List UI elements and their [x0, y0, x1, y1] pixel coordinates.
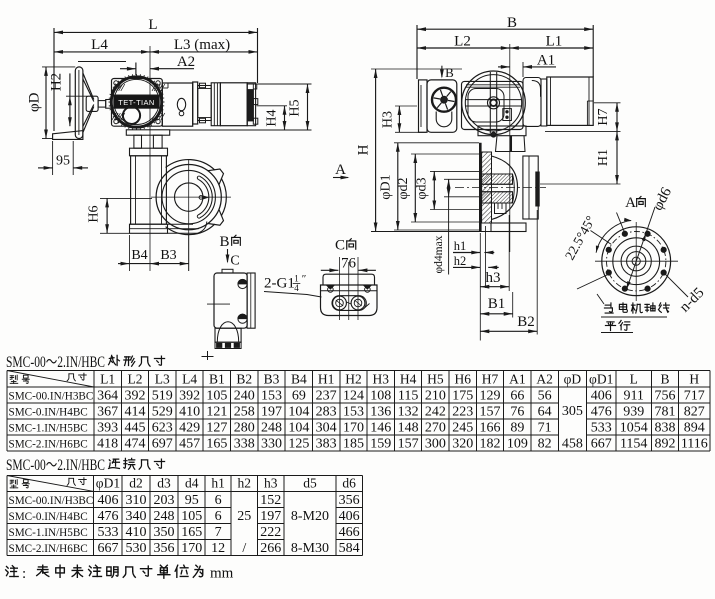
svg-text:392: 392: [179, 389, 200, 404]
svg-text:132: 132: [398, 405, 419, 420]
svg-text:146: 146: [370, 421, 391, 436]
svg-text:L1: L1: [100, 371, 115, 386]
svg-text:248: 248: [154, 509, 175, 524]
svg-text:838: 838: [655, 421, 676, 436]
svg-text:476: 476: [591, 405, 612, 420]
svg-text:445: 445: [124, 421, 145, 436]
svg-text:356: 356: [154, 541, 175, 556]
svg-text:121: 121: [206, 405, 227, 420]
svg-text:H7: H7: [596, 108, 611, 125]
svg-text:SMC-2.IN/H6BC: SMC-2.IN/H6BC: [9, 543, 88, 555]
svg-text:A2: A2: [177, 54, 195, 70]
svg-text:H1: H1: [318, 371, 335, 386]
svg-text:8-M30: 8-M30: [291, 541, 329, 556]
svg-text:124: 124: [343, 389, 364, 404]
svg-text:105: 105: [181, 509, 202, 524]
svg-text:519: 519: [152, 389, 173, 404]
svg-text:B4: B4: [131, 248, 147, 263]
svg-text:L3 (max): L3 (max): [174, 37, 230, 53]
svg-text:69: 69: [292, 389, 306, 404]
svg-text:781: 781: [655, 405, 676, 420]
svg-text:457: 457: [179, 437, 200, 452]
svg-text:L3: L3: [155, 371, 170, 386]
svg-text:356: 356: [339, 493, 360, 508]
svg-text:L: L: [630, 371, 638, 386]
svg-text:1054: 1054: [620, 421, 648, 436]
svg-text:304: 304: [316, 421, 337, 436]
svg-text:410: 410: [126, 525, 147, 540]
svg-text:533: 533: [591, 421, 612, 436]
svg-text:717: 717: [684, 389, 705, 404]
svg-text:/: /: [242, 541, 246, 556]
svg-text:466: 466: [339, 525, 360, 540]
svg-text:170: 170: [181, 541, 202, 556]
svg-text:H2: H2: [49, 73, 65, 91]
svg-text:25: 25: [237, 509, 251, 524]
svg-text:SMC-00.IN/H3BC: SMC-00.IN/H3BC: [9, 391, 94, 403]
svg-text:φD: φD: [564, 371, 582, 386]
svg-text:71: 71: [538, 421, 552, 436]
svg-text:6: 6: [215, 493, 222, 508]
svg-text:1116: 1116: [681, 437, 708, 452]
svg-text:φD1: φD1: [96, 476, 120, 491]
svg-text:h3: h3: [264, 476, 278, 491]
svg-text:H2: H2: [345, 371, 362, 386]
svg-text:340: 340: [126, 509, 147, 524]
svg-text:d2: d2: [129, 476, 143, 491]
svg-text:166: 166: [480, 421, 501, 436]
svg-text:B1: B1: [209, 371, 225, 386]
svg-text:383: 383: [316, 437, 337, 452]
svg-text:148: 148: [398, 421, 419, 436]
svg-text:mm: mm: [210, 566, 234, 582]
svg-text:SMC-1.IN/H5BC: SMC-1.IN/H5BC: [9, 423, 88, 435]
svg-text:95: 95: [185, 493, 199, 508]
svg-text:237: 237: [316, 389, 337, 404]
svg-text:280: 280: [234, 421, 255, 436]
svg-text:H7: H7: [482, 371, 499, 386]
svg-text:H5: H5: [288, 99, 303, 116]
svg-text:210: 210: [425, 389, 446, 404]
svg-text:L1: L1: [546, 34, 563, 50]
svg-text:H1: H1: [596, 149, 611, 166]
svg-text:d3: d3: [157, 476, 171, 491]
svg-text:367: 367: [97, 405, 118, 420]
svg-text:B2: B2: [236, 371, 252, 386]
svg-text:258: 258: [234, 405, 255, 420]
svg-text:h2: h2: [454, 254, 467, 268]
svg-text:222: 222: [260, 525, 281, 540]
svg-text:170: 170: [343, 421, 364, 436]
svg-text:B: B: [507, 15, 517, 31]
svg-text:″: ″: [302, 273, 307, 285]
svg-text:C: C: [230, 254, 239, 269]
svg-text:H4: H4: [400, 371, 417, 386]
svg-text:1: 1: [294, 274, 299, 284]
svg-text:φd3: φd3: [415, 177, 430, 199]
svg-text:L: L: [148, 17, 157, 33]
svg-text:TET-TIAN: TET-TIAN: [118, 98, 155, 107]
svg-text:320: 320: [452, 437, 473, 452]
svg-text:533: 533: [97, 525, 118, 540]
svg-text:429: 429: [179, 421, 200, 436]
svg-text:SMC-00～2.IN/HBC: SMC-00～2.IN/HBC: [6, 457, 105, 474]
svg-text:104: 104: [288, 405, 309, 420]
svg-text:H4: H4: [264, 109, 279, 126]
svg-text:175: 175: [452, 389, 473, 404]
svg-text:529: 529: [152, 405, 173, 420]
svg-text:474: 474: [124, 437, 145, 452]
svg-text:623: 623: [152, 421, 173, 436]
svg-text:406: 406: [339, 509, 360, 524]
svg-text:350: 350: [154, 525, 175, 540]
svg-text:283: 283: [316, 405, 337, 420]
svg-text:410: 410: [179, 405, 200, 420]
svg-text:105: 105: [206, 389, 227, 404]
svg-text:109: 109: [507, 437, 528, 452]
svg-text:φD: φD: [27, 92, 43, 112]
svg-text:152: 152: [260, 493, 281, 508]
svg-text:939: 939: [623, 405, 644, 420]
svg-text:d5: d5: [303, 476, 317, 491]
svg-text:129: 129: [480, 389, 501, 404]
svg-text:667: 667: [591, 437, 612, 452]
svg-text:165: 165: [206, 437, 227, 452]
svg-text:h1: h1: [211, 476, 225, 491]
svg-text:584: 584: [339, 541, 360, 556]
svg-text:242: 242: [425, 405, 446, 420]
svg-text:127: 127: [206, 421, 227, 436]
svg-text:157: 157: [480, 405, 501, 420]
svg-text::: :: [22, 566, 26, 582]
svg-text:B3: B3: [264, 371, 280, 386]
svg-text:414: 414: [124, 405, 145, 420]
svg-text:56: 56: [538, 389, 552, 404]
svg-text:393: 393: [97, 421, 118, 436]
svg-text:φd2: φd2: [396, 177, 411, 199]
svg-text:418: 418: [97, 437, 118, 452]
svg-text:L4: L4: [182, 371, 197, 386]
svg-text:203: 203: [154, 493, 175, 508]
svg-text:h3: h3: [486, 270, 501, 286]
svg-text:894: 894: [684, 421, 705, 436]
svg-text:305: 305: [562, 404, 583, 419]
svg-text:476: 476: [97, 509, 118, 524]
svg-text:104: 104: [288, 421, 309, 436]
svg-text:266: 266: [260, 541, 281, 556]
svg-text:95: 95: [56, 154, 70, 169]
svg-text:4: 4: [294, 283, 299, 293]
svg-text:L4: L4: [91, 37, 108, 53]
svg-text:L2: L2: [454, 34, 471, 50]
svg-text:A2: A2: [536, 371, 553, 386]
svg-text:197: 197: [261, 405, 282, 420]
svg-text:7: 7: [215, 525, 222, 540]
svg-text:B1: B1: [488, 296, 506, 312]
svg-text:L2: L2: [127, 371, 142, 386]
svg-text:φD1: φD1: [378, 174, 393, 199]
svg-text:153: 153: [343, 405, 364, 420]
svg-text:H3: H3: [381, 111, 396, 128]
svg-text:φd4max: φd4max: [433, 235, 445, 273]
svg-text:310: 310: [126, 493, 147, 508]
svg-text:240: 240: [234, 389, 255, 404]
svg-text:8-M20: 8-M20: [291, 509, 329, 524]
svg-text:A1: A1: [537, 53, 555, 69]
svg-text:245: 245: [452, 421, 473, 436]
svg-text:SMC-2.IN/H6BC: SMC-2.IN/H6BC: [9, 439, 88, 451]
svg-text:270: 270: [425, 421, 446, 436]
svg-text:458: 458: [562, 437, 583, 452]
svg-text:B: B: [445, 65, 454, 80]
svg-text:182: 182: [480, 437, 501, 452]
svg-text:330: 330: [261, 437, 282, 452]
svg-text:d6: d6: [342, 476, 356, 491]
svg-text:d4: d4: [185, 476, 199, 491]
svg-text:82: 82: [538, 437, 552, 452]
svg-text:392: 392: [124, 389, 145, 404]
svg-text:B4: B4: [291, 371, 307, 386]
svg-text:159: 159: [370, 437, 391, 452]
svg-text:A: A: [335, 162, 346, 178]
svg-text:115: 115: [398, 389, 418, 404]
svg-text:64: 64: [538, 405, 552, 420]
svg-text:SMC-0.IN/H4BC: SMC-0.IN/H4BC: [9, 511, 88, 523]
svg-text:530: 530: [126, 541, 147, 556]
svg-text:B: B: [660, 371, 669, 386]
svg-text:125: 125: [288, 437, 309, 452]
svg-text:A: A: [625, 195, 636, 211]
svg-text:66: 66: [510, 389, 524, 404]
svg-text:76: 76: [510, 405, 524, 420]
svg-text:185: 185: [343, 437, 364, 452]
svg-text:SMC-00.IN/H3BC: SMC-00.IN/H3BC: [9, 495, 94, 507]
svg-text:406: 406: [591, 389, 612, 404]
svg-text:SMC-00～2.IN/HBC: SMC-00～2.IN/HBC: [6, 354, 105, 371]
svg-text:12: 12: [211, 541, 225, 556]
svg-text:6: 6: [215, 509, 222, 524]
svg-text:153: 153: [261, 389, 282, 404]
svg-text:H6: H6: [454, 371, 471, 386]
svg-text:A1: A1: [509, 371, 526, 386]
svg-text:108: 108: [370, 389, 391, 404]
svg-text:756: 756: [655, 389, 676, 404]
svg-text:364: 364: [97, 389, 118, 404]
svg-text:892: 892: [655, 437, 676, 452]
svg-text:2-G1: 2-G1: [264, 276, 295, 292]
svg-text:H5: H5: [427, 371, 444, 386]
svg-text:C: C: [335, 238, 345, 254]
svg-text:SMC-1.IN/H5BC: SMC-1.IN/H5BC: [9, 527, 88, 539]
svg-text:406: 406: [97, 493, 118, 508]
svg-text:h2: h2: [238, 476, 252, 491]
svg-text:136: 136: [370, 405, 391, 420]
svg-text:197: 197: [260, 509, 281, 524]
svg-text:h1: h1: [454, 239, 467, 253]
svg-text:911: 911: [623, 389, 643, 404]
svg-text:B2: B2: [517, 314, 535, 330]
svg-text:165: 165: [181, 525, 202, 540]
svg-text:338: 338: [234, 437, 255, 452]
svg-text:89: 89: [510, 421, 524, 436]
svg-text:157: 157: [398, 437, 419, 452]
svg-text:697: 697: [152, 437, 173, 452]
svg-text:H6: H6: [87, 205, 102, 222]
svg-text:300: 300: [425, 437, 446, 452]
svg-text:1154: 1154: [620, 437, 647, 452]
svg-text:H: H: [689, 371, 699, 386]
svg-text:667: 667: [97, 541, 118, 556]
svg-text:B: B: [219, 234, 229, 250]
svg-text:248: 248: [261, 421, 282, 436]
svg-text:223: 223: [452, 405, 473, 420]
svg-text:B3: B3: [160, 248, 176, 263]
svg-text:SMC-0.IN/H4BC: SMC-0.IN/H4BC: [9, 407, 88, 419]
svg-text:H3: H3: [373, 371, 390, 386]
svg-text:φD1: φD1: [589, 371, 613, 386]
svg-text:H: H: [355, 144, 371, 155]
svg-text:827: 827: [684, 405, 705, 420]
